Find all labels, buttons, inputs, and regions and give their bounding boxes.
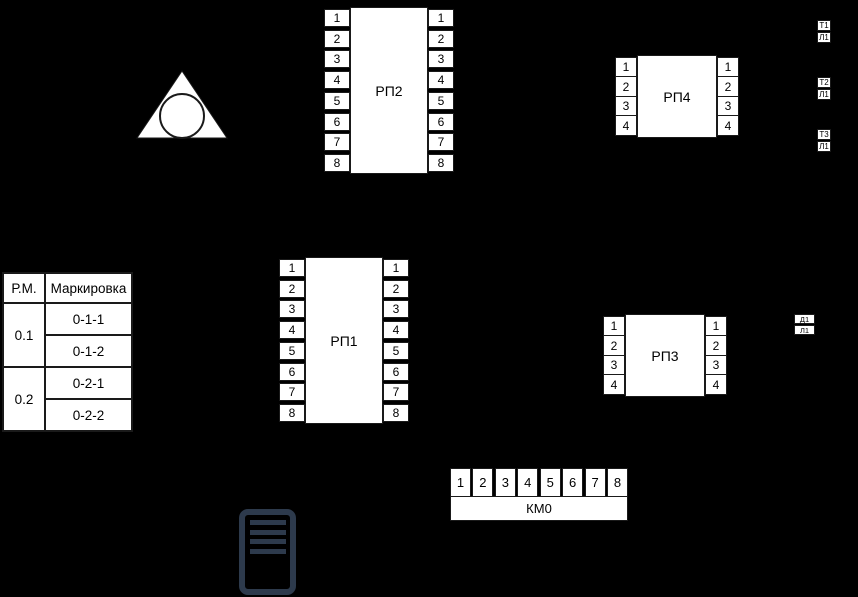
pin-cell: 1 xyxy=(705,316,727,337)
pin-cell: 1 xyxy=(717,57,739,78)
pin-cell: 4 xyxy=(279,321,305,339)
pin-cell: 3 xyxy=(717,96,739,117)
tag-d1-top: Д1 xyxy=(794,314,815,324)
tag-pair-t1: Т1 Л1 xyxy=(817,20,831,43)
pin-cell: 2 xyxy=(428,30,454,48)
pin-cell: 1 xyxy=(615,57,637,78)
rp3-body: РП3 xyxy=(625,314,705,397)
pin-cell: 4 xyxy=(383,321,409,339)
tag-pair-t2: Т2 Л1 xyxy=(817,77,831,100)
pin-cell: 6 xyxy=(562,468,583,497)
pin-cell: 6 xyxy=(279,363,305,381)
pin-cell: 7 xyxy=(383,383,409,401)
pin-cell: 6 xyxy=(324,113,350,131)
patch-panel-rp1: 12345678 РП1 12345678 xyxy=(279,257,409,424)
server-tower-icon xyxy=(239,509,296,595)
pin-cell: 2 xyxy=(603,335,625,356)
rp1-body: РП1 xyxy=(305,257,383,424)
marking-cell: 0-2-2 xyxy=(45,399,132,431)
pin-cell: 8 xyxy=(383,404,409,422)
rp4-right-pins: 1234 xyxy=(717,55,739,138)
pin-cell: 3 xyxy=(615,96,637,117)
pin-cell: 1 xyxy=(428,9,454,27)
rm-cell: 0.2 xyxy=(3,367,45,431)
pin-cell: 6 xyxy=(428,113,454,131)
pin-cell: 5 xyxy=(324,92,350,110)
pin-cell: 2 xyxy=(324,30,350,48)
tag-d1-bottom: Л1 xyxy=(794,325,815,335)
pin-cell: 1 xyxy=(383,259,409,277)
pin-cell: 1 xyxy=(324,9,350,27)
rp2-right-pins: 12345678 xyxy=(428,7,454,174)
patch-panel-rp3: 1234 РП3 1234 xyxy=(603,314,727,397)
pin-cell: 2 xyxy=(279,280,305,298)
tag-pair-d1: Д1 Л1 xyxy=(794,314,815,335)
rp2-left-pins: 12345678 xyxy=(324,7,350,174)
pin-cell: 7 xyxy=(324,133,350,151)
tag-t3-top: Т3 xyxy=(817,129,831,140)
marking-cell: 0-2-1 xyxy=(45,367,132,399)
pin-cell: 4 xyxy=(517,468,538,497)
pin-cell: 7 xyxy=(279,383,305,401)
pin-cell: 3 xyxy=(279,300,305,318)
marking-cell: 0-1-2 xyxy=(45,335,132,367)
pin-cell: 1 xyxy=(279,259,305,277)
pin-cell: 4 xyxy=(324,71,350,89)
pin-cell: 7 xyxy=(585,468,606,497)
pin-cell: 5 xyxy=(540,468,561,497)
tag-t1-top: Т1 xyxy=(817,20,831,31)
rp4-left-pins: 1234 xyxy=(615,55,637,138)
pin-cell: 3 xyxy=(428,50,454,68)
server-bar xyxy=(250,549,286,554)
pin-cell: 3 xyxy=(495,468,516,497)
pin-cell: 5 xyxy=(383,342,409,360)
marking-table: Р.М. Маркировка 0.1 0-1-1 0-1-2 0.2 0-2-… xyxy=(2,272,133,432)
tag-t2-bottom: Л1 xyxy=(817,89,831,100)
rp3-label: РП3 xyxy=(651,348,678,364)
pbx-triangle-circle-icon xyxy=(132,65,232,141)
pin-cell: 1 xyxy=(603,316,625,337)
patch-panel-rp2: 12345678 РП2 12345678 xyxy=(324,7,454,174)
pin-cell: 4 xyxy=(428,71,454,89)
pin-cell: 5 xyxy=(428,92,454,110)
pin-cell: 8 xyxy=(428,154,454,172)
rp3-right-pins: 1234 xyxy=(705,314,727,397)
pin-cell: 8 xyxy=(607,468,628,497)
km0-pins: 12345678 xyxy=(450,468,628,497)
rp1-right-pins: 12345678 xyxy=(383,257,409,424)
pin-cell: 5 xyxy=(279,342,305,360)
rp4-body: РП4 xyxy=(637,55,717,138)
pin-cell: 4 xyxy=(615,115,637,136)
pin-cell: 2 xyxy=(383,280,409,298)
km0-label: КМ0 xyxy=(450,496,628,521)
pin-cell: 1 xyxy=(450,468,471,497)
tag-t3-bottom: Л1 xyxy=(817,141,831,152)
rp2-label: РП2 xyxy=(375,83,402,99)
rp2-body: РП2 xyxy=(350,7,428,174)
tag-pair-t3: Т3 Л1 xyxy=(817,129,831,152)
pin-cell: 4 xyxy=(717,115,739,136)
pin-cell: 2 xyxy=(705,335,727,356)
pin-cell: 6 xyxy=(383,363,409,381)
tag-t2-top: Т2 xyxy=(817,77,831,88)
tag-t1-bottom: Л1 xyxy=(817,32,831,43)
server-bar xyxy=(250,520,286,525)
table-row: 0.2 0-2-1 xyxy=(3,367,132,399)
rm-header-cell: Р.М. xyxy=(3,273,45,303)
server-bar xyxy=(250,530,286,535)
pin-cell: 7 xyxy=(428,133,454,151)
pin-cell: 2 xyxy=(717,76,739,97)
marking-header-cell: Маркировка xyxy=(45,273,132,303)
pin-cell: 2 xyxy=(615,76,637,97)
rp1-label: РП1 xyxy=(330,333,357,349)
pin-cell: 4 xyxy=(705,374,727,395)
patch-panel-rp4: 1234 РП4 1234 xyxy=(615,55,739,138)
server-bar xyxy=(250,539,286,544)
pin-cell: 8 xyxy=(279,404,305,422)
pin-cell: 8 xyxy=(324,154,350,172)
pin-cell: 2 xyxy=(472,468,493,497)
pin-cell: 3 xyxy=(603,355,625,376)
pin-cell: 3 xyxy=(705,355,727,376)
pin-cell: 3 xyxy=(324,50,350,68)
rp3-left-pins: 1234 xyxy=(603,314,625,397)
marking-cell: 0-1-1 xyxy=(45,303,132,335)
pin-cell: 4 xyxy=(603,374,625,395)
connection-module-km0: 12345678 КМ0 xyxy=(450,468,628,521)
table-row: 0.1 0-1-1 xyxy=(3,303,132,335)
rm-cell: 0.1 xyxy=(3,303,45,367)
rp4-label: РП4 xyxy=(663,89,690,105)
rp1-left-pins: 12345678 xyxy=(279,257,305,424)
pin-cell: 3 xyxy=(383,300,409,318)
